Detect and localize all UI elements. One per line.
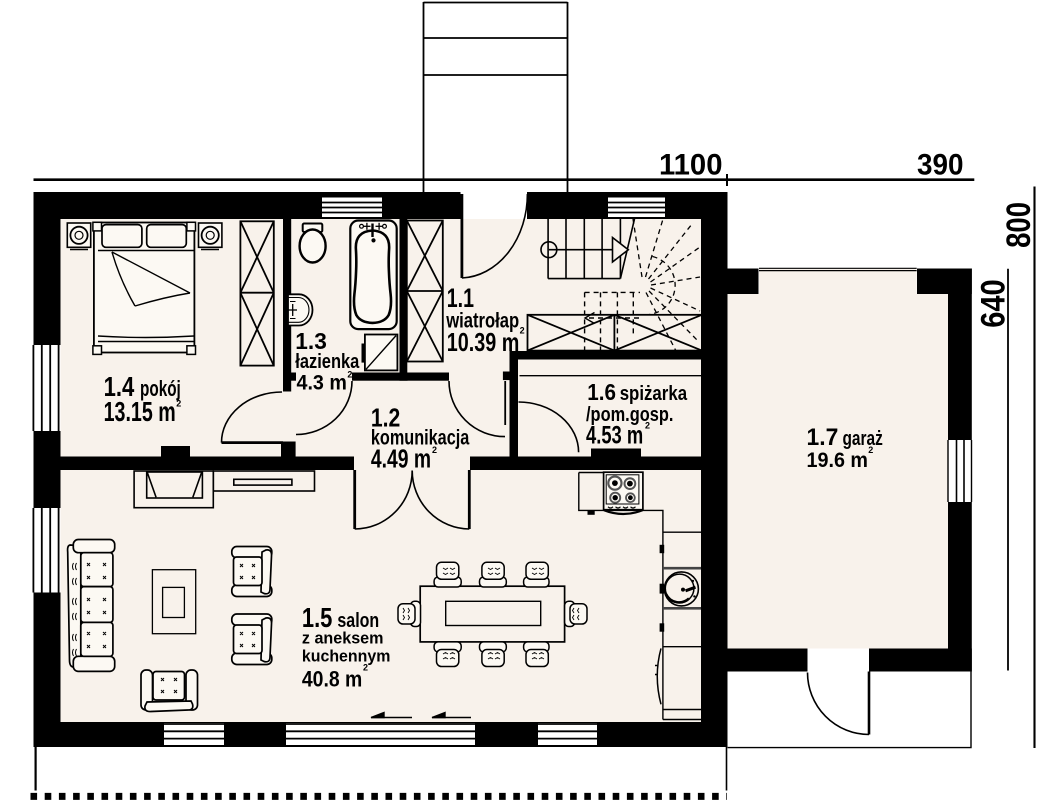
svg-text:kuchennym: kuchennym xyxy=(302,647,391,666)
svg-text:800: 800 xyxy=(1000,202,1038,248)
svg-text:2: 2 xyxy=(176,399,181,409)
svg-text:4.3 m: 4.3 m xyxy=(297,371,347,395)
svg-text:1100: 1100 xyxy=(659,149,723,182)
svg-text:1.3: 1.3 xyxy=(295,328,327,354)
svg-text:640: 640 xyxy=(975,279,1013,327)
svg-text:2: 2 xyxy=(868,445,873,455)
svg-text:1.7: 1.7 xyxy=(807,424,839,451)
svg-text:4.53 m: 4.53 m xyxy=(586,421,643,449)
svg-text:40.8 m: 40.8 m xyxy=(302,667,362,692)
svg-text:z aneksem: z aneksem xyxy=(302,629,384,648)
svg-text:2: 2 xyxy=(520,326,525,336)
svg-text:1.6: 1.6 xyxy=(587,379,616,405)
svg-text:spiżarka: spiżarka xyxy=(620,382,688,405)
svg-text:garaż: garaż xyxy=(843,428,883,450)
svg-text:10.39 m: 10.39 m xyxy=(447,327,520,357)
svg-text:2: 2 xyxy=(645,421,650,431)
svg-text:2: 2 xyxy=(432,445,437,455)
svg-text:2: 2 xyxy=(347,370,352,380)
svg-text:390: 390 xyxy=(917,149,964,182)
svg-text:19.6 m: 19.6 m xyxy=(807,448,869,472)
svg-text:4.49 m: 4.49 m xyxy=(371,444,431,474)
svg-text:2: 2 xyxy=(363,662,368,672)
svg-text:13.15 m: 13.15 m xyxy=(104,396,176,427)
